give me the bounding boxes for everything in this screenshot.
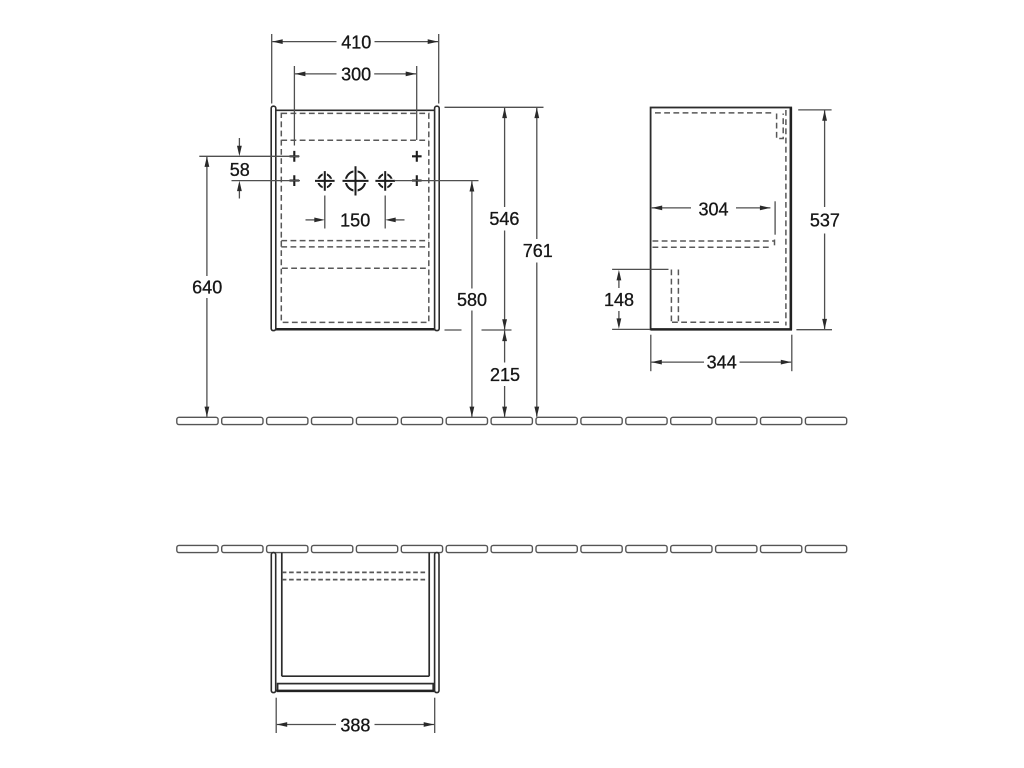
- svg-text:388: 388: [340, 715, 370, 735]
- svg-text:580: 580: [457, 290, 487, 310]
- svg-text:148: 148: [604, 290, 634, 310]
- svg-text:304: 304: [698, 199, 728, 219]
- svg-text:640: 640: [192, 278, 222, 298]
- svg-text:344: 344: [707, 353, 737, 373]
- svg-text:537: 537: [810, 211, 840, 231]
- svg-text:215: 215: [490, 365, 520, 385]
- svg-text:761: 761: [523, 241, 553, 261]
- svg-text:410: 410: [341, 33, 371, 53]
- svg-text:150: 150: [340, 210, 370, 230]
- svg-text:546: 546: [489, 209, 519, 229]
- svg-text:58: 58: [230, 160, 250, 180]
- svg-text:300: 300: [341, 65, 371, 85]
